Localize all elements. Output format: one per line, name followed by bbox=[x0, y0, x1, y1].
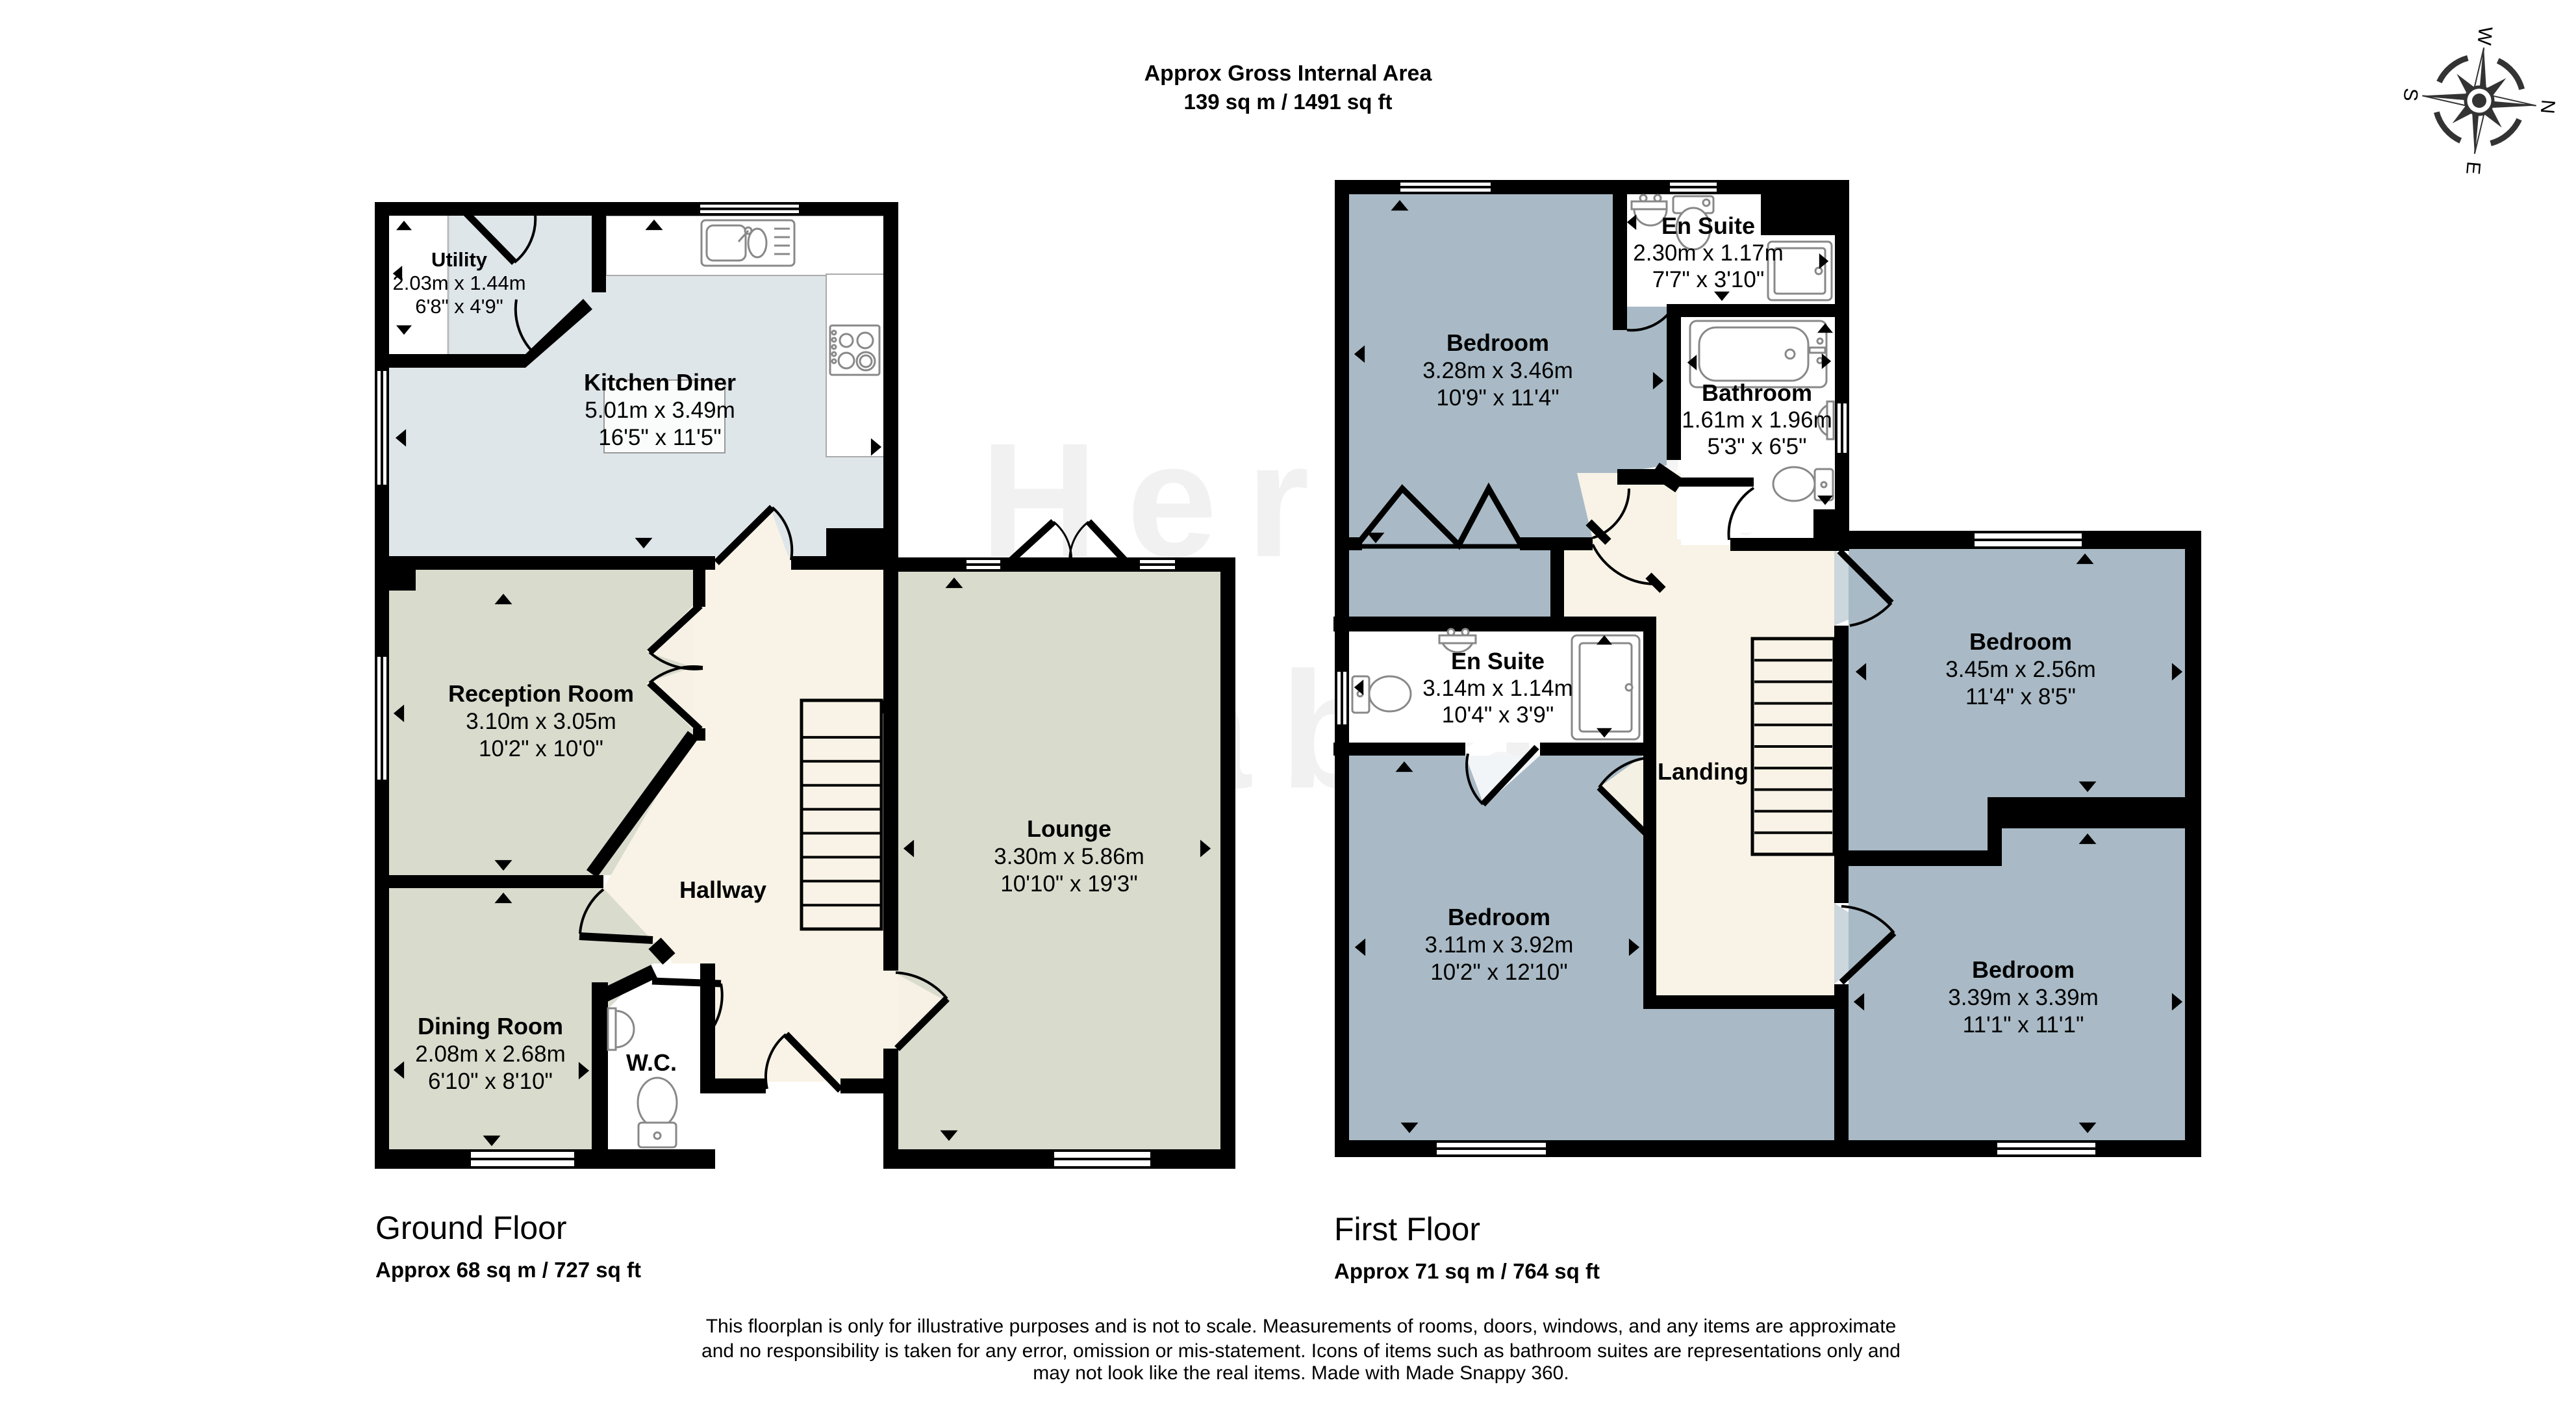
svg-text:3.10m x 3.05m: 3.10m x 3.05m bbox=[466, 709, 616, 734]
svg-text:16'5" x 11'5": 16'5" x 11'5" bbox=[598, 425, 721, 450]
svg-text:10'10" x 19'3": 10'10" x 19'3" bbox=[1000, 871, 1137, 897]
svg-text:Ground Floor: Ground Floor bbox=[375, 1210, 567, 1246]
svg-text:10'4" x 3'9": 10'4" x 3'9" bbox=[1442, 702, 1554, 728]
svg-text:First Floor: First Floor bbox=[1334, 1211, 1480, 1247]
svg-text:2.30m x 1.17m: 2.30m x 1.17m bbox=[1633, 240, 1784, 266]
svg-text:3.45m x 2.56m: 3.45m x 2.56m bbox=[1945, 657, 2096, 682]
svg-text:Bedroom: Bedroom bbox=[1969, 628, 2072, 655]
svg-text:7'7" x 3'10": 7'7" x 3'10" bbox=[1652, 267, 1765, 292]
svg-text:139 sq m / 1491 sq ft: 139 sq m / 1491 sq ft bbox=[1184, 90, 1393, 114]
svg-text:3.28m x 3.46m: 3.28m x 3.46m bbox=[1422, 358, 1573, 383]
svg-text:En Suite: En Suite bbox=[1661, 212, 1755, 239]
svg-text:2.08m x 2.68m: 2.08m x 2.68m bbox=[415, 1041, 566, 1067]
svg-text:N: N bbox=[2536, 99, 2559, 114]
svg-text:3.11m x 3.92m: 3.11m x 3.92m bbox=[1425, 932, 1574, 958]
svg-text:10'9" x 11'4": 10'9" x 11'4" bbox=[1436, 385, 1559, 411]
svg-text:Kitchen Diner: Kitchen Diner bbox=[584, 369, 736, 396]
svg-text:3.30m x 5.86m: 3.30m x 5.86m bbox=[994, 844, 1144, 869]
svg-text:W.C.: W.C. bbox=[626, 1049, 677, 1076]
svg-text:6'10" x 8'10": 6'10" x 8'10" bbox=[428, 1069, 553, 1094]
svg-text:Dining Room: Dining Room bbox=[418, 1013, 563, 1039]
svg-text:Lounge: Lounge bbox=[1027, 815, 1111, 842]
svg-text:10'2" x 10'0": 10'2" x 10'0" bbox=[479, 736, 603, 761]
svg-text:En Suite: En Suite bbox=[1451, 648, 1545, 674]
svg-text:Hallway: Hallway bbox=[679, 876, 766, 903]
svg-text:This floorplan is only for ill: This floorplan is only for illustrative … bbox=[706, 1316, 1897, 1337]
svg-text:10'2" x 12'10": 10'2" x 12'10" bbox=[1430, 960, 1567, 985]
svg-text:S: S bbox=[2399, 87, 2422, 102]
svg-text:3.39m x 3.39m: 3.39m x 3.39m bbox=[1948, 985, 2099, 1010]
svg-text:E: E bbox=[2462, 160, 2484, 175]
svg-text:5.01m x 3.49m: 5.01m x 3.49m bbox=[585, 398, 735, 423]
svg-text:Bedroom: Bedroom bbox=[1448, 904, 1550, 930]
svg-text:Utility: Utility bbox=[431, 248, 488, 271]
svg-text:2.03m x 1.44m: 2.03m x 1.44m bbox=[392, 272, 525, 294]
svg-text:11'4" x 8'5": 11'4" x 8'5" bbox=[1965, 684, 2076, 709]
svg-text:and no responsibility is taken: and no responsibility is taken for any e… bbox=[701, 1340, 1900, 1362]
svg-text:Landing: Landing bbox=[1658, 758, 1749, 785]
svg-text:Approx Gross Internal Area: Approx Gross Internal Area bbox=[1144, 61, 1433, 86]
svg-text:1.61m x 1.96m: 1.61m x 1.96m bbox=[1682, 407, 1832, 433]
svg-text:W: W bbox=[2473, 26, 2495, 47]
svg-text:may not look like the real ite: may not look like the real items. Made w… bbox=[1033, 1362, 1569, 1384]
svg-text:Bathroom: Bathroom bbox=[1702, 379, 1812, 406]
svg-text:6'8" x 4'9": 6'8" x 4'9" bbox=[415, 295, 503, 318]
svg-text:Approx 71 sq m / 764 sq ft: Approx 71 sq m / 764 sq ft bbox=[1334, 1259, 1600, 1283]
svg-text:Bedroom: Bedroom bbox=[1446, 329, 1549, 356]
svg-text:3.14m x 1.14m: 3.14m x 1.14m bbox=[1422, 676, 1573, 701]
svg-text:Bedroom: Bedroom bbox=[1972, 956, 2075, 983]
svg-text:5'3" x 6'5": 5'3" x 6'5" bbox=[1707, 434, 1806, 459]
svg-text:Reception Room: Reception Room bbox=[448, 680, 634, 707]
svg-text:Approx 68 sq m / 727 sq ft: Approx 68 sq m / 727 sq ft bbox=[375, 1258, 641, 1282]
svg-text:11'1" x 11'1": 11'1" x 11'1" bbox=[1963, 1012, 2084, 1038]
